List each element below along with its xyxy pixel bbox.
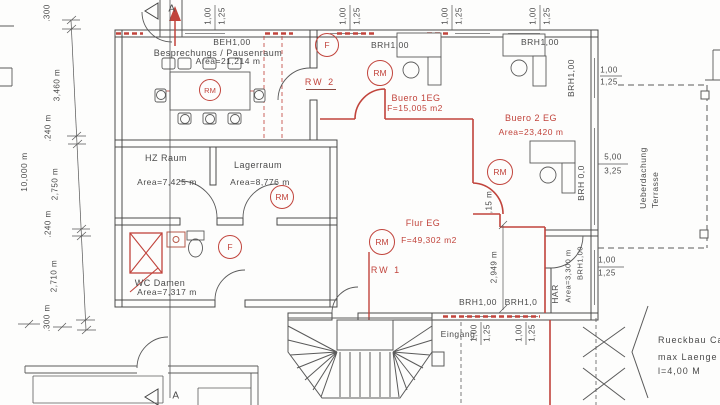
- dim-left-3460: 3,460 m: [53, 69, 62, 101]
- dim-right1-125: 1,25: [600, 78, 618, 87]
- desk-buero2-mid: [530, 141, 575, 193]
- dim-left-240a: .240 m: [44, 114, 53, 141]
- rm-text: RM: [275, 192, 288, 202]
- room-label-buero2: Buero 2 EG: [505, 113, 557, 123]
- dim-top2-125: 1,25: [353, 7, 362, 25]
- section-marker-top: A: [168, 4, 175, 15]
- dim-top4-100: 1,00: [529, 7, 538, 25]
- dim-left-300b: .300 m: [43, 304, 52, 331]
- room-label-har: HAR: [550, 284, 560, 303]
- rw1-label: RW 1: [371, 265, 401, 275]
- brh-label-south1: BRH1,00: [459, 297, 497, 307]
- beh-label: BEH1,00: [213, 37, 251, 47]
- brh00-label: BRH 0,0: [576, 165, 586, 201]
- dim-top1-125: 1,25: [218, 7, 227, 25]
- dim-bot1-100: 1,00: [470, 324, 479, 342]
- f-text: F: [324, 40, 329, 50]
- staircase: [288, 318, 444, 398]
- dim-top1-100: 1,00: [204, 7, 213, 25]
- f-badge-wc: F: [218, 235, 242, 259]
- rm-badge-besprechung: RM: [199, 79, 221, 101]
- dim-left-240b: .240 m: [44, 210, 53, 237]
- dim-bot1-125: 1,25: [483, 324, 492, 342]
- rm-badge-lager: RM: [270, 185, 294, 209]
- terrasse-label-2: Terrasse: [650, 172, 660, 209]
- dim-top2-100: 1,00: [339, 7, 348, 25]
- dim-right3-125: 1,25: [598, 269, 616, 278]
- f-text: F: [227, 242, 232, 252]
- rw2-label: RW 2: [305, 77, 335, 87]
- section-marker-bottom: A: [172, 391, 179, 402]
- dim-left-overall: 10,000 m: [19, 152, 29, 191]
- room-area-flur: F=49,302 m2: [401, 235, 457, 245]
- terrace-posts: [700, 91, 709, 238]
- demolition-area: [461, 306, 648, 405]
- rueckbau-note-line1: Rueckbau Ca: [658, 335, 720, 345]
- f-badge-top: F: [315, 33, 339, 57]
- rm-badge-buero1: RM: [367, 60, 393, 86]
- dim-right1-100: 1,00: [600, 66, 618, 75]
- dim-2949: 2,949 m: [490, 251, 499, 283]
- har-brh-label: BRH1,00: [576, 246, 585, 280]
- dim-left-2710: 2,710 m: [50, 260, 59, 292]
- dim-top3-100: 1,00: [441, 7, 450, 25]
- brh-label-east-wall: BRH1,00: [566, 59, 576, 97]
- rm-badge-flur: RM: [369, 229, 395, 255]
- rueckbau-note-line2: max Laenge: [658, 352, 718, 362]
- dim-right2-325: 3,25: [604, 167, 622, 176]
- brh-label-south2: BRH1,0: [505, 297, 538, 307]
- plan-linework: [0, 0, 720, 405]
- room-label-hz: HZ Raum: [145, 153, 187, 163]
- room-label-flur: Flur EG: [406, 218, 441, 228]
- dim-left-300a: .300: [43, 4, 52, 22]
- dim-bot2-125: 1,25: [528, 324, 537, 342]
- dim-right3-100: 1,00: [598, 256, 616, 265]
- rm-text: RM: [375, 237, 388, 247]
- room-area-besprechung: Area=21,214 m: [196, 56, 261, 66]
- rm-badge-buero2: RM: [487, 159, 513, 185]
- dim-left-2750: 2,750 m: [51, 168, 60, 200]
- dim-top3-125: 1,25: [455, 7, 464, 25]
- rm-text: RM: [493, 167, 506, 177]
- terrasse-label-1: Ueberdachung: [638, 147, 648, 209]
- brh-label-buero2: BRH1,00: [521, 37, 559, 47]
- dim-door-15: ,15 m: [485, 191, 494, 214]
- rm-text: RM: [204, 86, 216, 95]
- room-label-buero1: Buero 1EG: [391, 93, 440, 103]
- dim-top4-125: 1,25: [543, 7, 552, 25]
- room-area-buero1: F=15,005 m2: [387, 103, 443, 113]
- room-area-buero2: Area=23,420 m: [499, 127, 564, 137]
- dim-bot2-100: 1,00: [515, 324, 524, 342]
- room-area-wc: Area=7,317 m: [137, 287, 197, 297]
- rueckbau-note-line3: l=4,00 M: [658, 366, 701, 376]
- room-label-lager: Lagerraum: [234, 160, 282, 170]
- brh-label-buero1: BRH1,00: [371, 40, 409, 50]
- room-area-hz: Area=7,425 m: [137, 177, 197, 187]
- rm-text: RM: [373, 68, 386, 78]
- room-area-har: Area=3,300 m: [564, 249, 573, 302]
- floor-plan: Besprechungs / Pausenraum Area=21,214 m …: [0, 0, 720, 405]
- dim-right2-500: 5,00: [604, 153, 622, 162]
